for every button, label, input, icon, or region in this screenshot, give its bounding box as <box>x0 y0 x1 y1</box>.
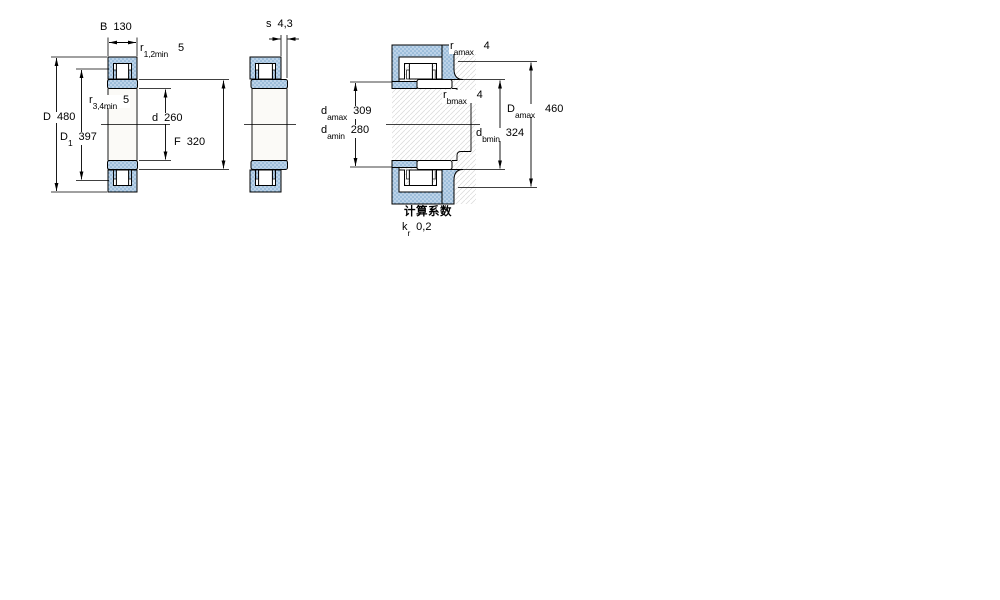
roller-bottom <box>409 170 432 186</box>
dim-label-D1: D1397 <box>59 132 98 145</box>
dim-label-damin: damin280 <box>320 125 370 138</box>
cage-bar <box>407 70 410 79</box>
roller-bottom <box>259 170 273 186</box>
inner-ring-bottom <box>108 161 138 170</box>
cross-section-view <box>51 38 229 193</box>
cage-bar <box>273 170 276 179</box>
dim-label-d: d260 <box>151 113 183 124</box>
dim-label-D: D480 <box>42 112 76 123</box>
cage-bar <box>114 170 117 179</box>
calculation-factors-heading: 计算系数 <box>403 207 453 219</box>
mounting-view <box>350 45 537 204</box>
inner-ring-top <box>108 80 138 89</box>
factor-label-kr: kr0,2 <box>401 222 432 235</box>
roller-top <box>409 64 432 80</box>
side-view <box>244 35 299 192</box>
bearing-drawing-page: B130 r1,2min5 D480 D1397 r3,4min5 d260 F… <box>0 0 1000 600</box>
dim-label-Damax: Damax460 <box>506 104 564 117</box>
dim-label-F: F320 <box>173 137 206 148</box>
dim-label-damax: damax309 <box>320 106 372 119</box>
dim-label-rbmax: rbmax4 <box>442 90 484 103</box>
roller-top <box>259 64 273 80</box>
dim-label-B: B130 <box>99 22 133 33</box>
cage-bar <box>114 70 117 79</box>
cage-bar <box>273 70 276 79</box>
dim-label-r12min: r1,2min5 <box>139 43 185 56</box>
dim-label-ramax: ramax4 <box>449 41 491 54</box>
cage-bar <box>433 70 436 79</box>
inner-ring-bottom <box>251 161 288 170</box>
cage-bar <box>407 170 410 179</box>
dim-label-s: s4,3 <box>265 19 294 30</box>
shaft-collar-top <box>392 82 417 89</box>
inner-ring-top <box>251 80 288 89</box>
cage-bar <box>129 70 132 79</box>
dim-label-r34min: r3,4min5 <box>88 95 130 108</box>
dim-label-dbmin: dbmin324 <box>475 128 525 141</box>
inner-ring-top <box>417 80 452 89</box>
roller-top <box>116 64 128 80</box>
inner-ring-bottom <box>417 161 452 170</box>
cage-bar <box>129 170 132 179</box>
technical-drawing-canvas <box>0 0 1000 600</box>
roller-bottom <box>116 170 128 186</box>
shaft-collar-bottom <box>392 161 417 168</box>
cage-bar <box>433 170 436 179</box>
cage-bar <box>256 70 259 79</box>
cage-bar <box>256 170 259 179</box>
